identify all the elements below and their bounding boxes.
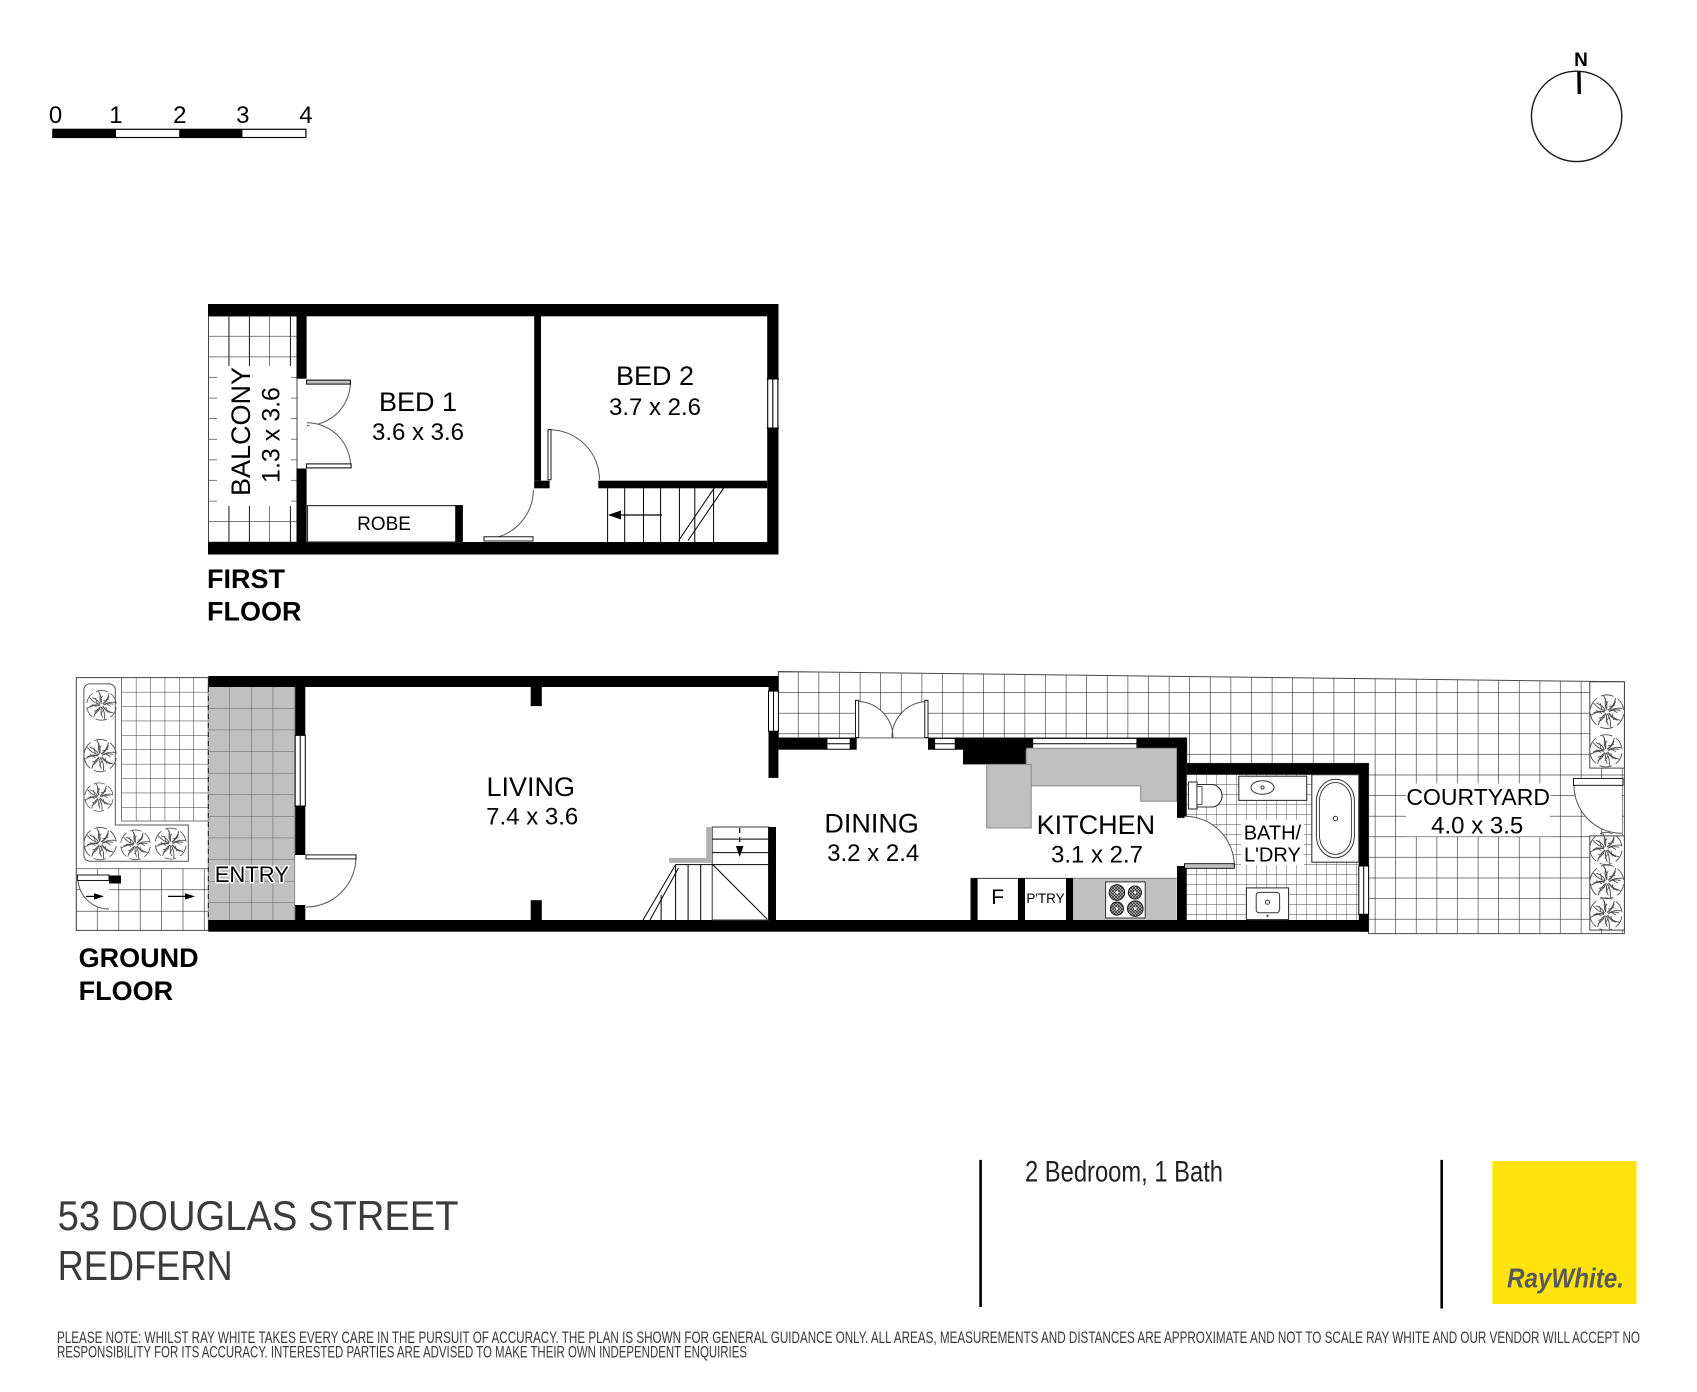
- svg-text:4: 4: [299, 102, 312, 129]
- svg-text:LIVING: LIVING: [487, 772, 576, 802]
- svg-text:DINING: DINING: [824, 809, 919, 839]
- svg-text:3.6 x 3.6: 3.6 x 3.6: [372, 419, 464, 446]
- svg-text:7.4 x 3.6: 7.4 x 3.6: [486, 804, 578, 831]
- svg-text:P'TRY: P'TRY: [1026, 891, 1064, 906]
- svg-text:1.3 x 3.6: 1.3 x 3.6: [258, 387, 286, 483]
- svg-text:GROUND: GROUND: [79, 943, 199, 973]
- svg-text:3.7 x 2.6: 3.7 x 2.6: [609, 394, 701, 421]
- svg-text:RayWhite.: RayWhite.: [1507, 1263, 1624, 1294]
- svg-text:FLOOR: FLOOR: [79, 976, 174, 1006]
- svg-text:3.2 x 2.4: 3.2 x 2.4: [827, 840, 919, 867]
- svg-text:FIRST: FIRST: [207, 564, 286, 594]
- svg-text:RESPONSIBILITY FOR ITS ACCURAC: RESPONSIBILITY FOR ITS ACCURACY. INTERES…: [57, 1344, 747, 1362]
- svg-text:3.1 x 2.7: 3.1 x 2.7: [1051, 842, 1143, 869]
- svg-text:BED 2: BED 2: [616, 361, 694, 391]
- svg-text:1: 1: [109, 102, 122, 129]
- svg-text:BED 1: BED 1: [379, 387, 457, 417]
- svg-text:2: 2: [173, 102, 186, 129]
- svg-text:ENTRY: ENTRY: [215, 862, 289, 887]
- svg-text:ROBE: ROBE: [357, 514, 411, 535]
- svg-text:L'DRY: L'DRY: [1244, 845, 1301, 867]
- svg-text:COURTYARD: COURTYARD: [1406, 784, 1550, 810]
- svg-text:BALCONY: BALCONY: [226, 367, 256, 496]
- svg-text:4.0 x 3.5: 4.0 x 3.5: [1431, 812, 1523, 839]
- svg-text:BATH/: BATH/: [1244, 823, 1302, 845]
- svg-text:REDFERN: REDFERN: [58, 1242, 233, 1289]
- svg-text:KITCHEN: KITCHEN: [1037, 810, 1156, 840]
- svg-text:3: 3: [236, 102, 249, 129]
- svg-text:2 Bedroom, 1 Bath: 2 Bedroom, 1 Bath: [1025, 1155, 1223, 1188]
- svg-text:F: F: [991, 886, 1004, 909]
- svg-text:0: 0: [49, 102, 62, 129]
- svg-text:FLOOR: FLOOR: [207, 597, 302, 627]
- svg-text:N: N: [1574, 50, 1588, 71]
- svg-text:53 DOUGLAS STREET: 53 DOUGLAS STREET: [58, 1192, 459, 1239]
